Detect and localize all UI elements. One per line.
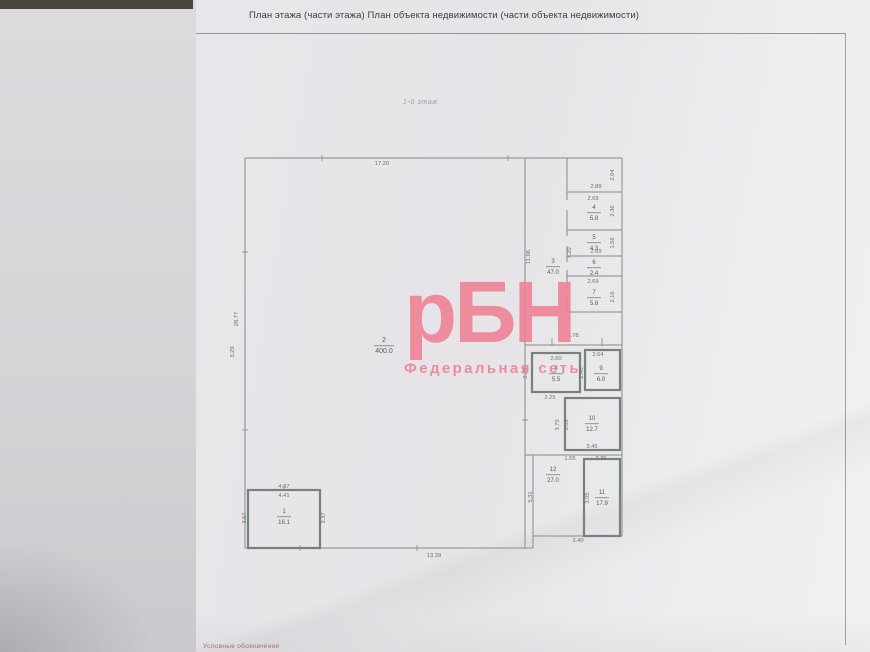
watermark-subtitle: Федеральная сеть	[404, 360, 581, 377]
watermark-logo: рБН	[404, 272, 581, 355]
photo-background-strip	[0, 0, 193, 9]
sheet-frame-top	[196, 33, 846, 34]
sheet-frame-right	[845, 33, 846, 645]
page-left-margin	[0, 0, 197, 652]
document-photo: План этажа (части этажа) План объекта не…	[0, 0, 870, 652]
watermark: рБН Федеральная сеть	[404, 272, 581, 377]
document-title: План этажа (части этажа) План объекта не…	[234, 10, 654, 21]
floor-label: 1-й этаж	[403, 99, 438, 106]
legend-note: Условные обозначения	[203, 643, 279, 650]
